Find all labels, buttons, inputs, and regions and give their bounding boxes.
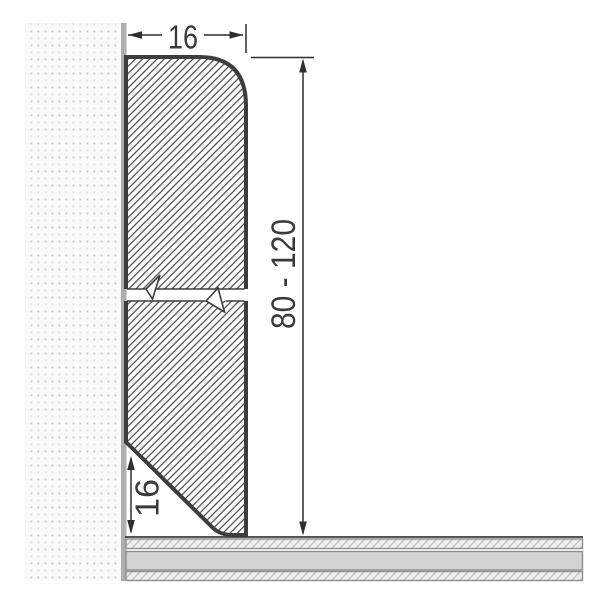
arrow-left-icon: [128, 31, 142, 38]
arrow-right-icon: [230, 31, 244, 38]
technical-drawing-svg: 16 80 - 120 16: [0, 0, 604, 604]
dimension-label-width: 16: [168, 19, 198, 56]
dimension-height-right: 80 - 120: [251, 58, 314, 536]
floor-middle-layer: [126, 552, 583, 571]
dimension-width-top: 16: [128, 19, 246, 56]
dimension-label-height: 80 - 120: [265, 219, 303, 329]
wall: [25, 23, 127, 581]
profile-upper-section: [126, 57, 246, 299]
arrow-up-icon: [299, 59, 307, 73]
profile-upper-hatch: [126, 57, 246, 289]
dimension-label-bevel: 16: [129, 479, 166, 517]
arrow-up-icon: [127, 456, 135, 470]
drawing-area: 16 80 - 120 16: [0, 0, 604, 604]
floor-bottom-layer: [126, 572, 583, 581]
arrow-down-icon: [127, 520, 135, 534]
floor: [125, 537, 583, 581]
floor-top-layer: [126, 539, 583, 549]
wall-texture: [25, 23, 121, 581]
arrow-down-icon: [299, 522, 307, 536]
